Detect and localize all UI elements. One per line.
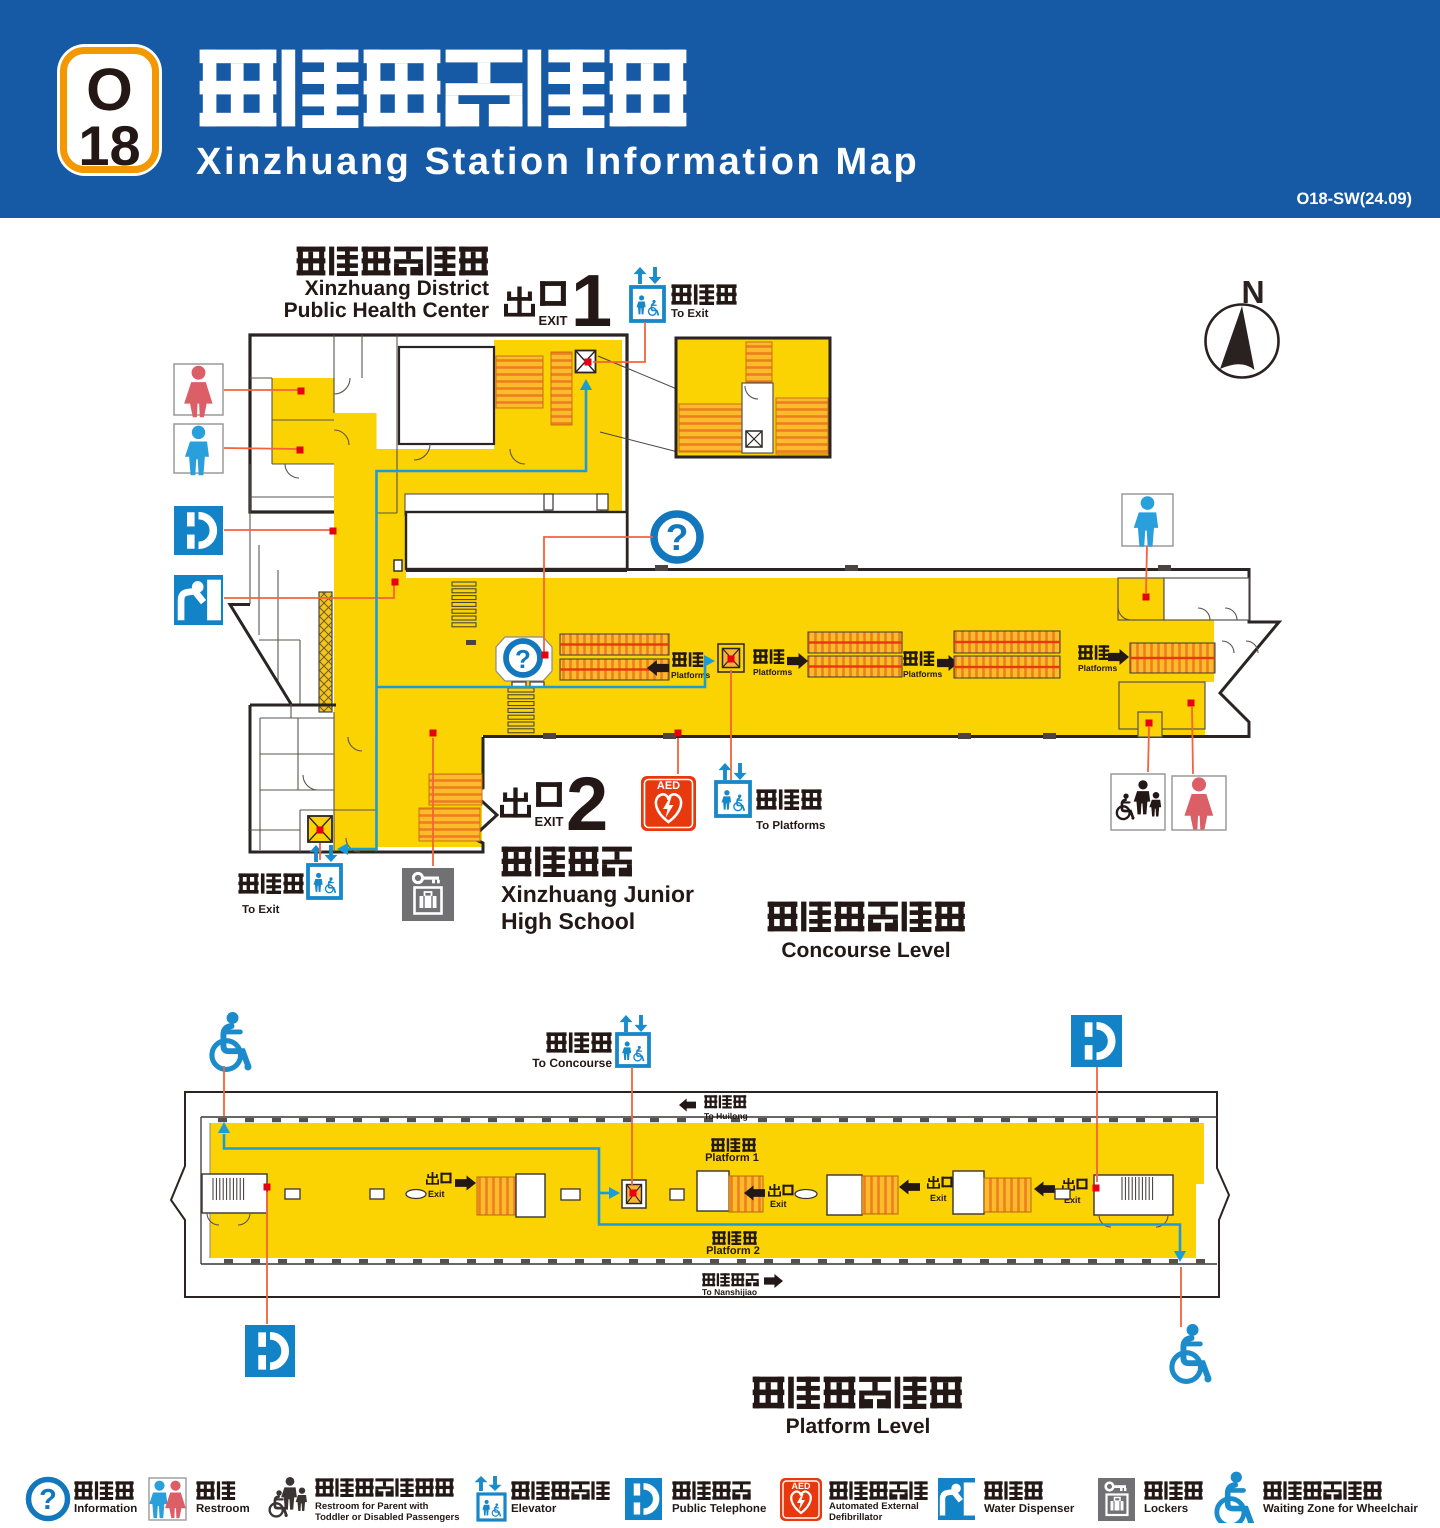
svg-text:1: 1	[571, 259, 612, 342]
svg-text:Xinzhuang Junior: Xinzhuang Junior	[501, 881, 694, 907]
svg-text:Water Dispenser: Water Dispenser	[984, 1503, 1075, 1515]
svg-text:Restroom for Parent with: Restroom for Parent with	[315, 1501, 429, 1512]
svg-text:18: 18	[78, 114, 140, 177]
svg-text:Lockers: Lockers	[1144, 1503, 1188, 1515]
svg-text:Waiting Zone for Wheelchair: Waiting Zone for Wheelchair	[1263, 1503, 1418, 1515]
svg-text:Restroom: Restroom	[196, 1503, 250, 1515]
svg-text:To Exit: To Exit	[671, 308, 709, 320]
svg-text:Exit: Exit	[770, 1199, 787, 1209]
svg-text:?: ?	[39, 1484, 57, 1516]
svg-text:?: ?	[515, 644, 531, 674]
svg-text:To Nanshijiao: To Nanshijiao	[702, 1287, 757, 1297]
svg-text:Platform 2: Platform 2	[706, 1245, 760, 1257]
svg-text:Automated External: Automated External	[829, 1501, 919, 1512]
svg-text:?: ?	[666, 517, 689, 558]
svg-text:Public Health Center: Public Health Center	[284, 299, 489, 322]
svg-text:AED: AED	[657, 780, 680, 792]
svg-text:Xinzhuang District: Xinzhuang District	[305, 277, 489, 300]
svg-text:Platform 1: Platform 1	[705, 1152, 759, 1164]
svg-text:N: N	[1241, 274, 1264, 310]
svg-text:O: O	[86, 56, 133, 123]
svg-text:High School: High School	[501, 908, 635, 934]
svg-text:Exit: Exit	[428, 1189, 445, 1199]
svg-text:EXIT: EXIT	[539, 313, 568, 328]
svg-text:To Huilong: To Huilong	[704, 1111, 748, 1121]
svg-text:2: 2	[566, 762, 608, 847]
svg-text:Platform Level: Platform Level	[786, 1415, 931, 1438]
svg-text:To Exit: To Exit	[242, 904, 280, 916]
svg-text:Exit: Exit	[930, 1193, 947, 1203]
svg-text:Xinzhuang Station Information: Xinzhuang Station Information Map	[196, 141, 919, 183]
svg-text:Platforms: Platforms	[903, 669, 942, 679]
svg-text:O18-SW(24.09): O18-SW(24.09)	[1296, 190, 1412, 208]
svg-text:To Platforms: To Platforms	[756, 820, 825, 832]
svg-text:Toddler or Disabled Passengers: Toddler or Disabled Passengers	[315, 1512, 459, 1523]
svg-text:Defibrillator: Defibrillator	[829, 1512, 883, 1523]
svg-text:To Concourse: To Concourse	[532, 1056, 612, 1070]
svg-text:AED: AED	[791, 1481, 811, 1491]
svg-text:EXIT: EXIT	[535, 814, 564, 829]
svg-text:Information: Information	[74, 1503, 137, 1515]
svg-text:Public Telephone: Public Telephone	[672, 1503, 766, 1515]
svg-text:Platforms: Platforms	[753, 667, 792, 677]
svg-text:Elevator: Elevator	[511, 1503, 557, 1515]
svg-text:Platforms: Platforms	[1078, 663, 1117, 673]
svg-text:Concourse Level: Concourse Level	[781, 939, 950, 962]
